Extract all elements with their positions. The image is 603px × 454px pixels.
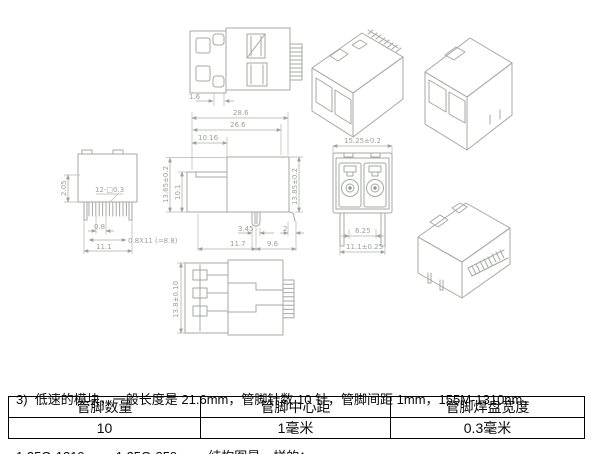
view-rear-pins: 2.05 12-□0.3 0.8 0.8X11 (=8.8) 11.1 (60, 150, 178, 254)
pin-spec-table: 管脚数量 管脚中心距 管脚焊盘宽度 10 1毫米 0.3毫米 (8, 396, 585, 439)
dim-label-bottom-height: 13.8±0.10 (172, 281, 180, 318)
dim-label-len-total: 28.6 (233, 109, 249, 117)
table-header-row: 管脚数量 管脚中心距 管脚焊盘宽度 (9, 397, 585, 418)
dim-label-pin-spec: 12-□0.3 (95, 186, 124, 194)
dim-label-h-right: 13.85±0.2 (291, 168, 299, 205)
cell-pin-pitch: 1毫米 (201, 418, 391, 439)
iso-view-front-right (425, 38, 512, 150)
dim-label-rear-width: 11.1 (96, 243, 112, 251)
technical-drawing: 1.6 28.6 26.6 10.16 13.65±0.2 10.1 13.85… (0, 0, 603, 350)
dim-label-front-width: 15.25±0.2 (344, 137, 381, 145)
iso-view-rear (418, 203, 510, 298)
dim-label-span-right: 9.6 (267, 240, 279, 248)
dim-label-h-inner: 10.1 (174, 184, 182, 200)
header-cell-pad-width: 管脚焊盘宽度 (391, 397, 585, 418)
view-bottom: 13.8±0.10 (172, 260, 294, 335)
header-cell-pin-count: 管脚数量 (9, 397, 201, 418)
dim-label-leg-inner: 6.25 (355, 227, 371, 235)
header-cell-pin-pitch: 管脚中心距 (201, 397, 391, 418)
dim-label-post-w: 3.45 (238, 225, 254, 233)
table-row: 10 1毫米 0.3毫米 (9, 418, 585, 439)
dim-label-pitch-total: 0.8X11 (=8.8) (128, 237, 178, 245)
dim-label-leg-outer: 11.1±0.25 (346, 243, 383, 251)
view-front-lc: 15.25±0.2 6.25 11.1±0.25 (333, 137, 392, 255)
dim-label-len-body: 26.6 (230, 121, 246, 129)
dim-label-pitch: 0.8 (94, 223, 105, 231)
cell-pad-width: 0.3毫米 (391, 418, 585, 439)
dim-label-pin-len: 2.05 (60, 180, 68, 196)
paragraph-line-2: 1.25G-1310nm，1.25G-850nm，结构图是一样的： (16, 447, 594, 454)
cell-pin-count: 10 (9, 418, 201, 439)
view-top-plan: 1.6 (189, 28, 302, 106)
dim-label-span-left: 11.7 (230, 240, 246, 248)
dim-label-hook-w: 2 (283, 225, 287, 233)
iso-view-front-left (312, 30, 403, 137)
dim-label-top-tab: 1.6 (189, 93, 201, 101)
document-page: 1.6 28.6 26.6 10.16 13.65±0.2 10.1 13.85… (0, 0, 603, 454)
view-side: 28.6 26.6 10.16 13.65±0.2 10.1 13.85±0.2… (162, 109, 304, 251)
dim-label-len-bezel: 10.16 (198, 134, 219, 142)
dim-label-h-outer: 13.65±0.2 (162, 166, 170, 203)
